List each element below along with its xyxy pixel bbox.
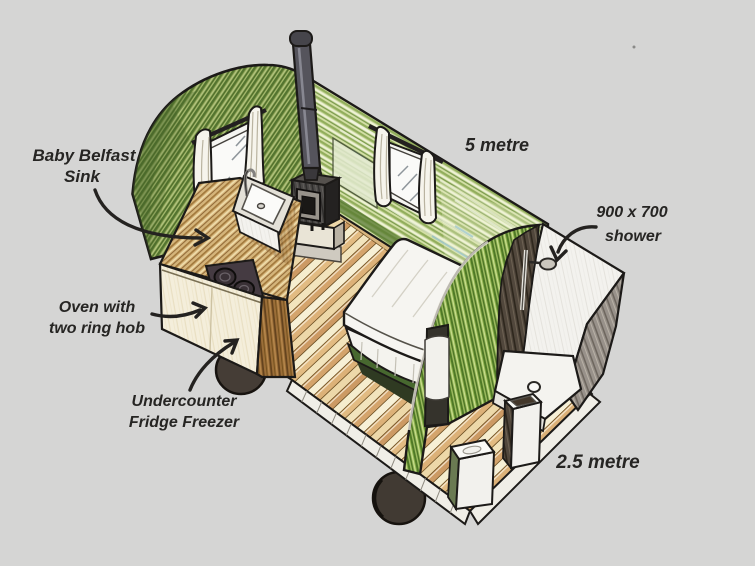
svg-text:Fridge Freezer: Fridge Freezer	[129, 414, 240, 431]
svg-text:Undercounter: Undercounter	[132, 393, 238, 410]
svg-text:900 x 700: 900 x 700	[596, 204, 667, 221]
svg-text:Baby Belfast: Baby Belfast	[33, 146, 137, 165]
svg-text:2.5 metre: 2.5 metre	[555, 452, 640, 473]
svg-text:Oven with: Oven with	[59, 299, 136, 316]
svg-text:Sink: Sink	[64, 167, 101, 186]
svg-text:two ring hob: two ring hob	[49, 320, 145, 337]
svg-text:shower: shower	[605, 228, 662, 245]
svg-text:5 metre: 5 metre	[465, 135, 529, 155]
